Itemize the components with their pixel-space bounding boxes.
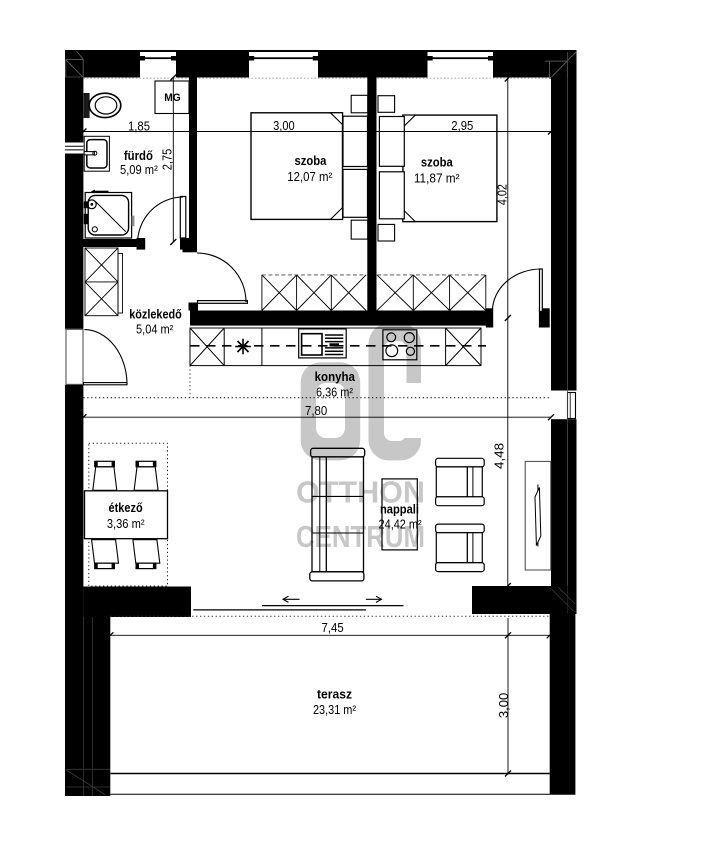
svg-text:5,09 m²: 5,09 m²: [120, 163, 158, 177]
svg-text:23,31 m²: 23,31 m²: [313, 703, 356, 717]
svg-text:12,07 m²: 12,07 m²: [287, 170, 332, 184]
svg-text:7,45: 7,45: [322, 621, 344, 635]
svg-text:konyha: konyha: [315, 370, 356, 384]
svg-text:2,95: 2,95: [451, 119, 473, 133]
svg-text:5,04 m²: 5,04 m²: [136, 323, 173, 337]
svg-text:3,36 m²: 3,36 m²: [107, 517, 145, 531]
svg-text:étkező: étkező: [109, 501, 143, 515]
svg-text:4,48: 4,48: [492, 443, 506, 469]
svg-text:4,02: 4,02: [495, 184, 509, 205]
svg-text:2,75: 2,75: [161, 149, 175, 171]
svg-text:3,00: 3,00: [497, 693, 511, 719]
svg-text:6,36 m²: 6,36 m²: [316, 386, 353, 400]
svg-text:MG: MG: [164, 92, 181, 104]
svg-text:1,85: 1,85: [128, 119, 150, 133]
svg-text:fürdő: fürdő: [124, 149, 153, 163]
svg-text:szoba: szoba: [295, 154, 328, 168]
svg-text:nappali: nappali: [380, 502, 419, 516]
svg-text:24,42 m²: 24,42 m²: [379, 518, 422, 532]
svg-text:3,00: 3,00: [273, 119, 295, 133]
svg-text:7,80: 7,80: [305, 404, 327, 418]
svg-text:terasz: terasz: [317, 688, 352, 702]
svg-text:közlekedő: közlekedő: [129, 307, 182, 321]
svg-text:11,87 m²: 11,87 m²: [414, 172, 460, 186]
svg-text:szoba: szoba: [421, 155, 454, 169]
